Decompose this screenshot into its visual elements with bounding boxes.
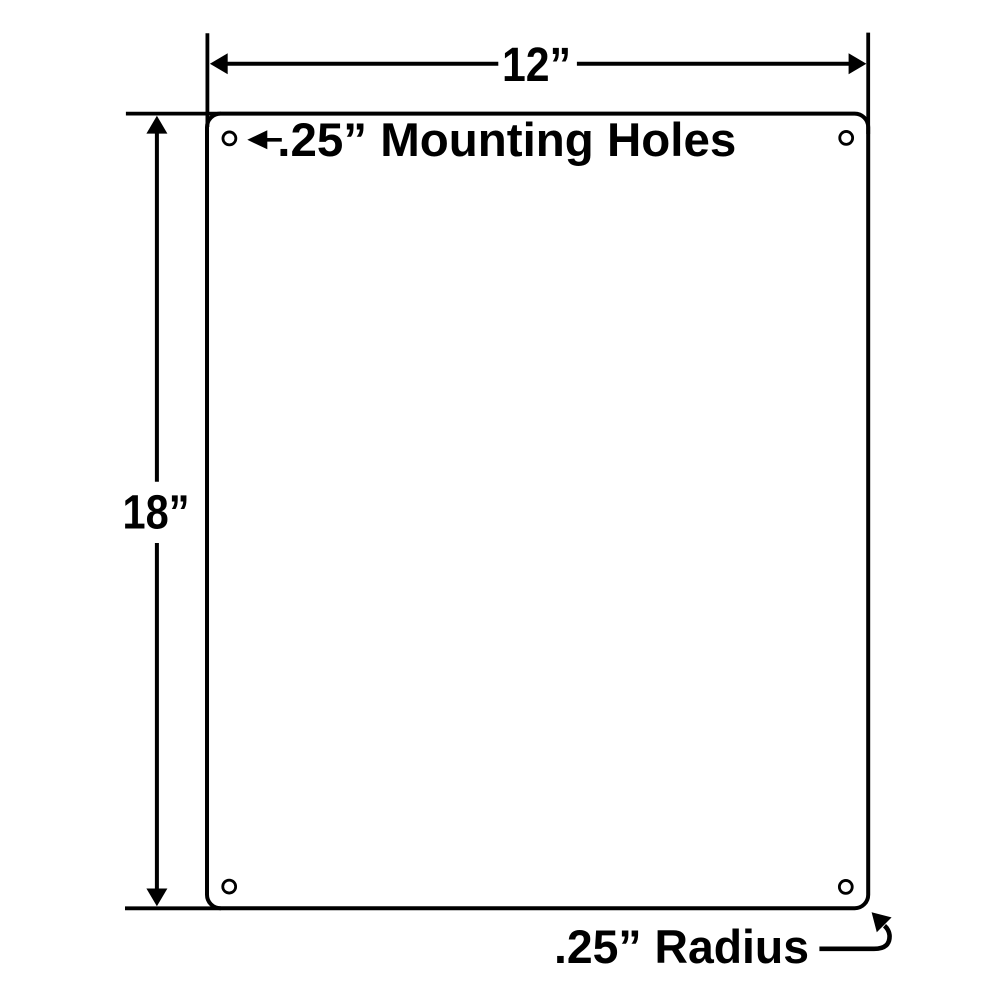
svg-text:.25” Mounting Holes: .25” Mounting Holes: [277, 114, 736, 167]
svg-text:.25” Radius: .25” Radius: [554, 921, 809, 974]
svg-text:12”: 12”: [502, 38, 571, 92]
svg-text:18”: 18”: [123, 486, 190, 540]
